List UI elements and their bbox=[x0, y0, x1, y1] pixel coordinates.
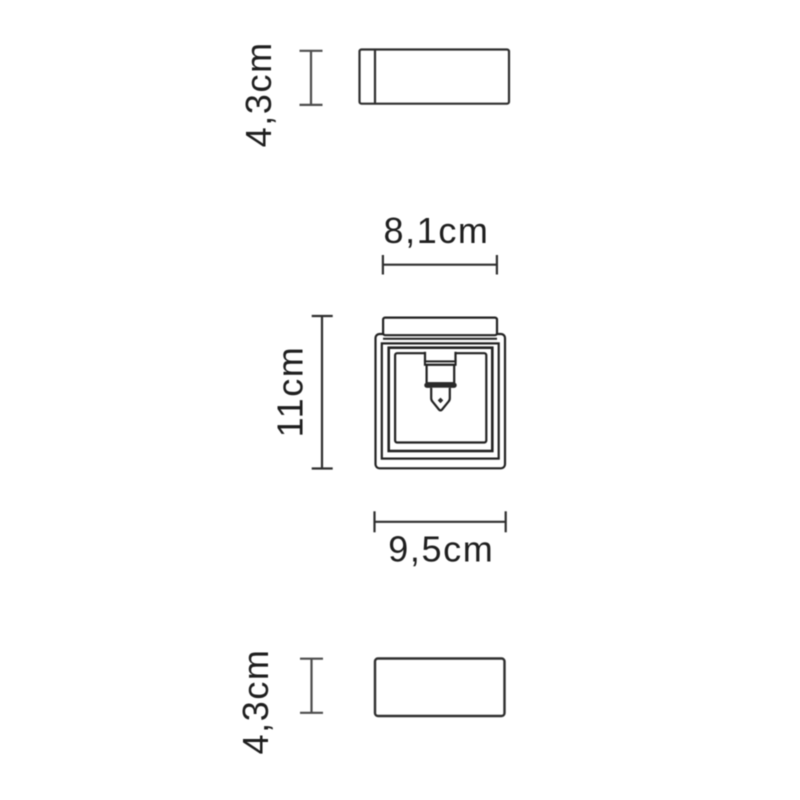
svg-text:4,3cm: 4,3cm bbox=[235, 648, 276, 754]
svg-text:8,1cm: 8,1cm bbox=[383, 210, 489, 251]
svg-text:11cm: 11cm bbox=[270, 346, 311, 438]
svg-text:9,5cm: 9,5cm bbox=[388, 529, 494, 570]
svg-text:4,3cm: 4,3cm bbox=[238, 41, 279, 147]
